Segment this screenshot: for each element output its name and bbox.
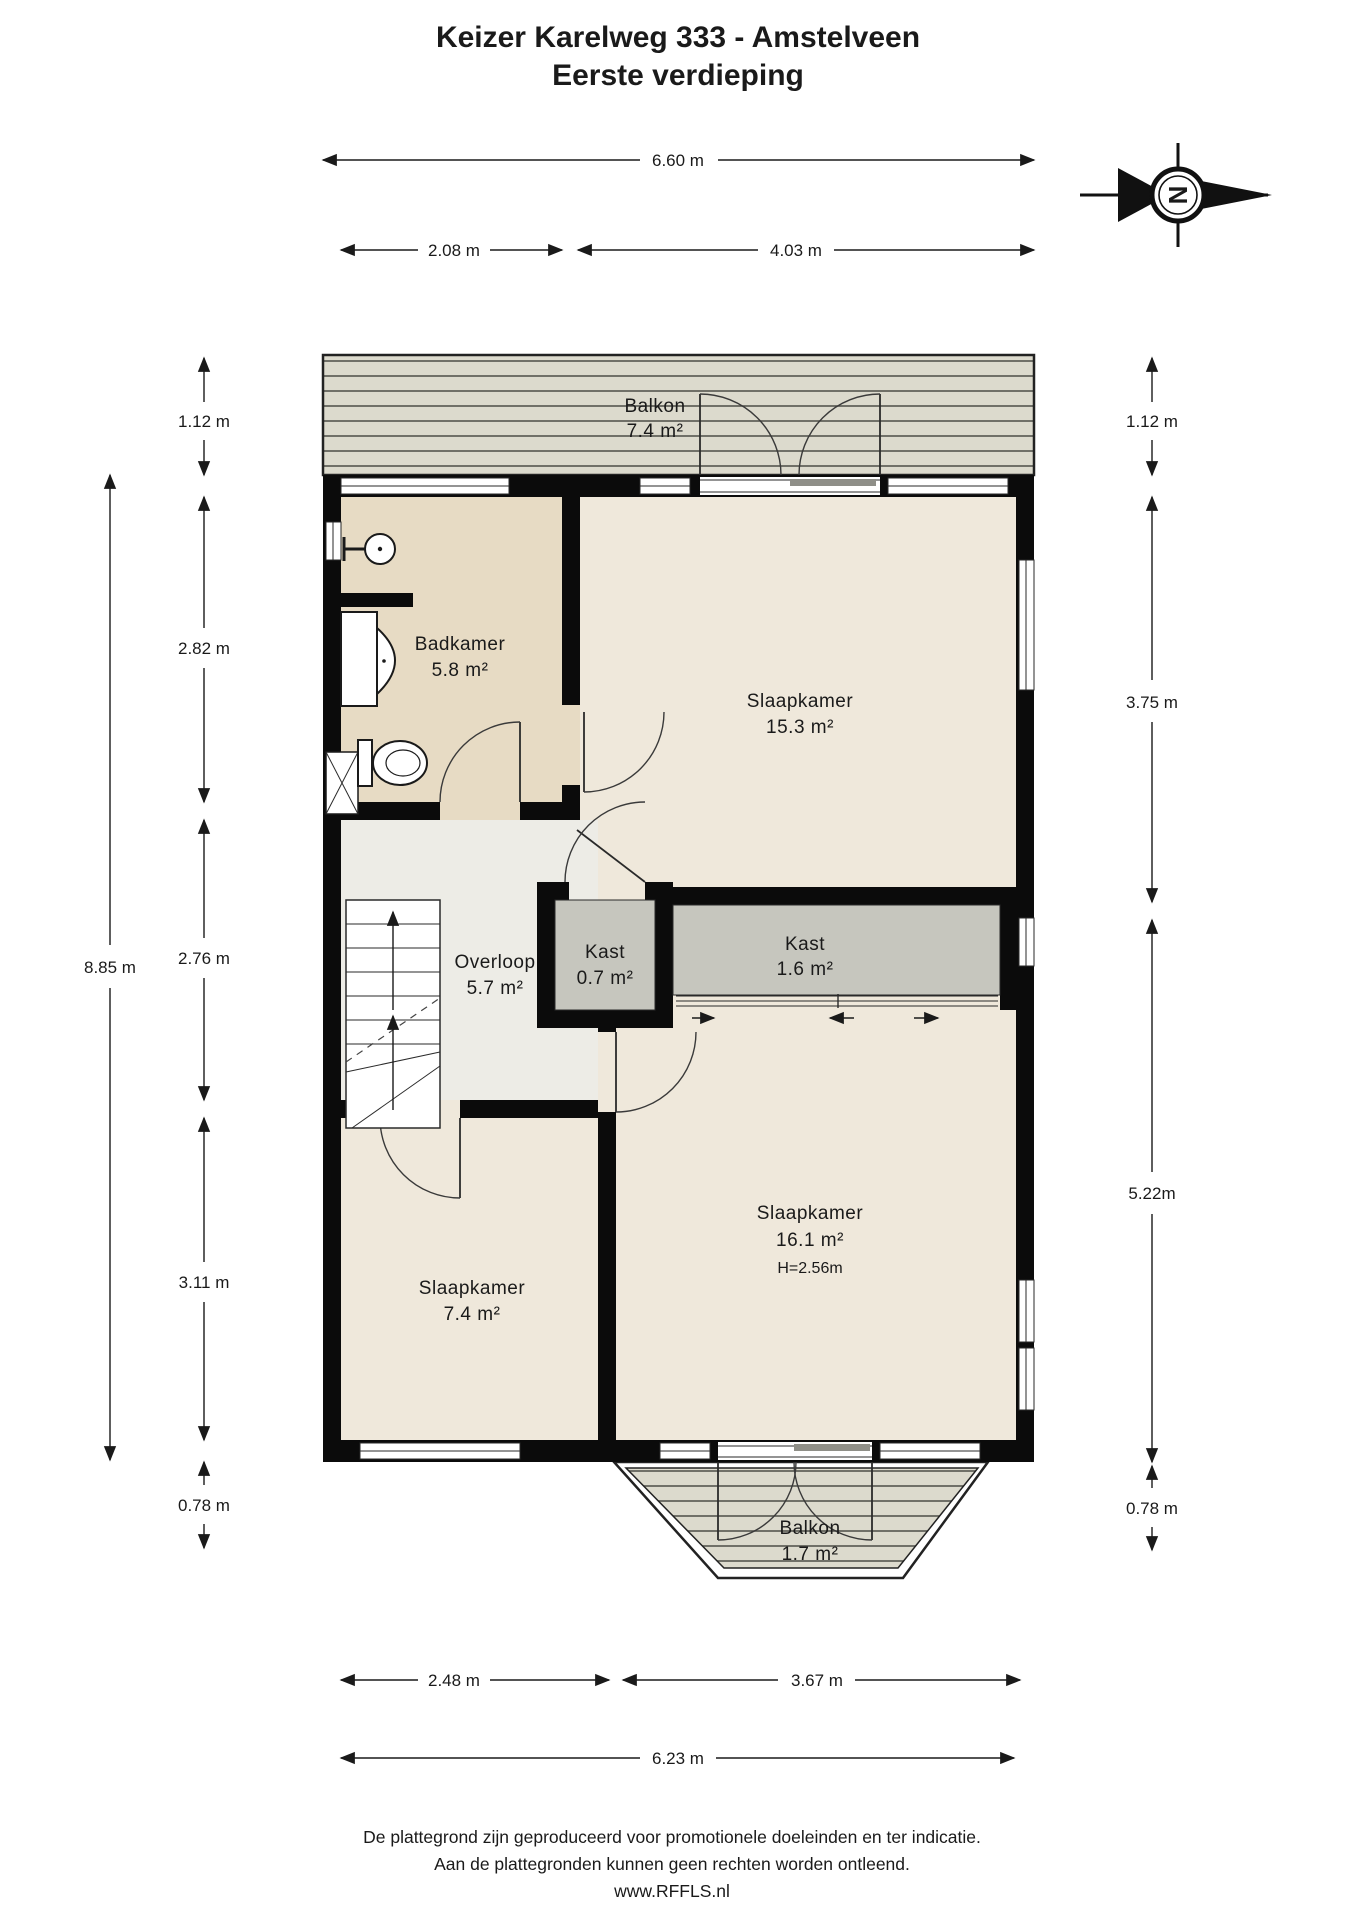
footer-line-1: De plattegrond zijn geproduceerd voor pr…: [363, 1827, 981, 1847]
window-bottom-left: [360, 1443, 520, 1459]
dim-left-2: 2.82 m: [178, 639, 230, 658]
dim-left-1: 1.12 m: [178, 412, 230, 431]
window-bottom-mid: [660, 1443, 710, 1459]
floor-slaapkamer-7: [341, 1100, 598, 1440]
page-subtitle: Eerste verdieping: [552, 59, 804, 92]
label-balkon-top-area: 7.4 m²: [627, 421, 684, 442]
dim-bottom-right: 3.67 m: [791, 1671, 843, 1690]
toilet-icon: [358, 740, 427, 786]
dim-top-right: 4.03 m: [770, 241, 822, 260]
dim-right-2: 3.75 m: [1126, 693, 1178, 712]
label-balkon-bottom: Balkon: [779, 1518, 840, 1539]
floorplan-drawing: Keizer Karelweg 333 - Amstelveen Eerste …: [0, 0, 1358, 1920]
label-slaapkamer-15: Slaapkamer: [747, 691, 854, 712]
label-slaapkamer-7-area: 7.4 m²: [444, 1304, 501, 1325]
label-kast-large-area: 1.6 m²: [777, 959, 834, 980]
window-right-slaapkamer15: [1019, 560, 1034, 690]
label-slaapkamer-16-height: H=2.56m: [777, 1260, 842, 1277]
window-left-badkamer: [326, 522, 341, 560]
dim-left-3: 2.76 m: [178, 949, 230, 968]
title-block: Keizer Karelweg 333 - Amstelveen Eerste …: [436, 21, 920, 92]
dim-right-3: 5.22m: [1128, 1184, 1175, 1203]
label-slaapkamer-7: Slaapkamer: [419, 1278, 526, 1299]
dim-top-left: 2.08 m: [428, 241, 480, 260]
dim-bottom-total: 6.23 m: [652, 1749, 704, 1768]
north-compass-icon: N: [1080, 143, 1272, 247]
staircase: [346, 900, 440, 1128]
duct-shaft-icon: [326, 752, 358, 814]
label-badkamer-area: 5.8 m²: [432, 660, 489, 681]
dim-right-1: 1.12 m: [1126, 412, 1178, 431]
window-top-right: [888, 478, 1008, 494]
page-title: Keizer Karelweg 333 - Amstelveen: [436, 21, 920, 54]
dim-left-5: 0.78 m: [178, 1496, 230, 1515]
dim-top-total: 6.60 m: [652, 151, 704, 170]
window-bottom-right: [880, 1443, 980, 1459]
kast-large-box: [673, 905, 1000, 1018]
label-overloop: Overloop: [454, 952, 535, 973]
label-balkon-top: Balkon: [624, 396, 685, 417]
window-right-kast: [1019, 918, 1034, 966]
dim-right-4: 0.78 m: [1126, 1499, 1178, 1518]
footer-website: www.RFFLS.nl: [613, 1881, 730, 1901]
footer-line-2: Aan de plattegronden kunnen geen rechten…: [434, 1854, 910, 1874]
dim-bottom-left: 2.48 m: [428, 1671, 480, 1690]
balcony-door-opening: [700, 477, 880, 495]
bay-door-opening: [718, 1442, 872, 1460]
label-slaapkamer-16-area: 16.1 m²: [776, 1230, 844, 1251]
label-badkamer: Badkamer: [415, 634, 506, 655]
window-top-left: [341, 478, 509, 494]
footer-disclaimer: De plattegrond zijn geproduceerd voor pr…: [363, 1827, 981, 1901]
compass-letter: N: [1163, 186, 1193, 205]
dim-left-4: 3.11 m: [179, 1273, 230, 1292]
label-kast-small-area: 0.7 m²: [577, 968, 634, 989]
label-balkon-bottom-area: 1.7 m²: [782, 1544, 839, 1565]
window-top-mid: [640, 478, 690, 494]
label-overloop-area: 5.7 m²: [467, 978, 524, 999]
dim-left-total: 8.85 m: [84, 958, 136, 977]
label-slaapkamer-16: Slaapkamer: [757, 1203, 864, 1224]
floorplan-page: Keizer Karelweg 333 - Amstelveen Eerste …: [0, 0, 1358, 1920]
label-kast-large: Kast: [785, 934, 825, 955]
label-slaapkamer-15-area: 15.3 m²: [766, 717, 834, 738]
label-kast-small: Kast: [585, 942, 625, 963]
